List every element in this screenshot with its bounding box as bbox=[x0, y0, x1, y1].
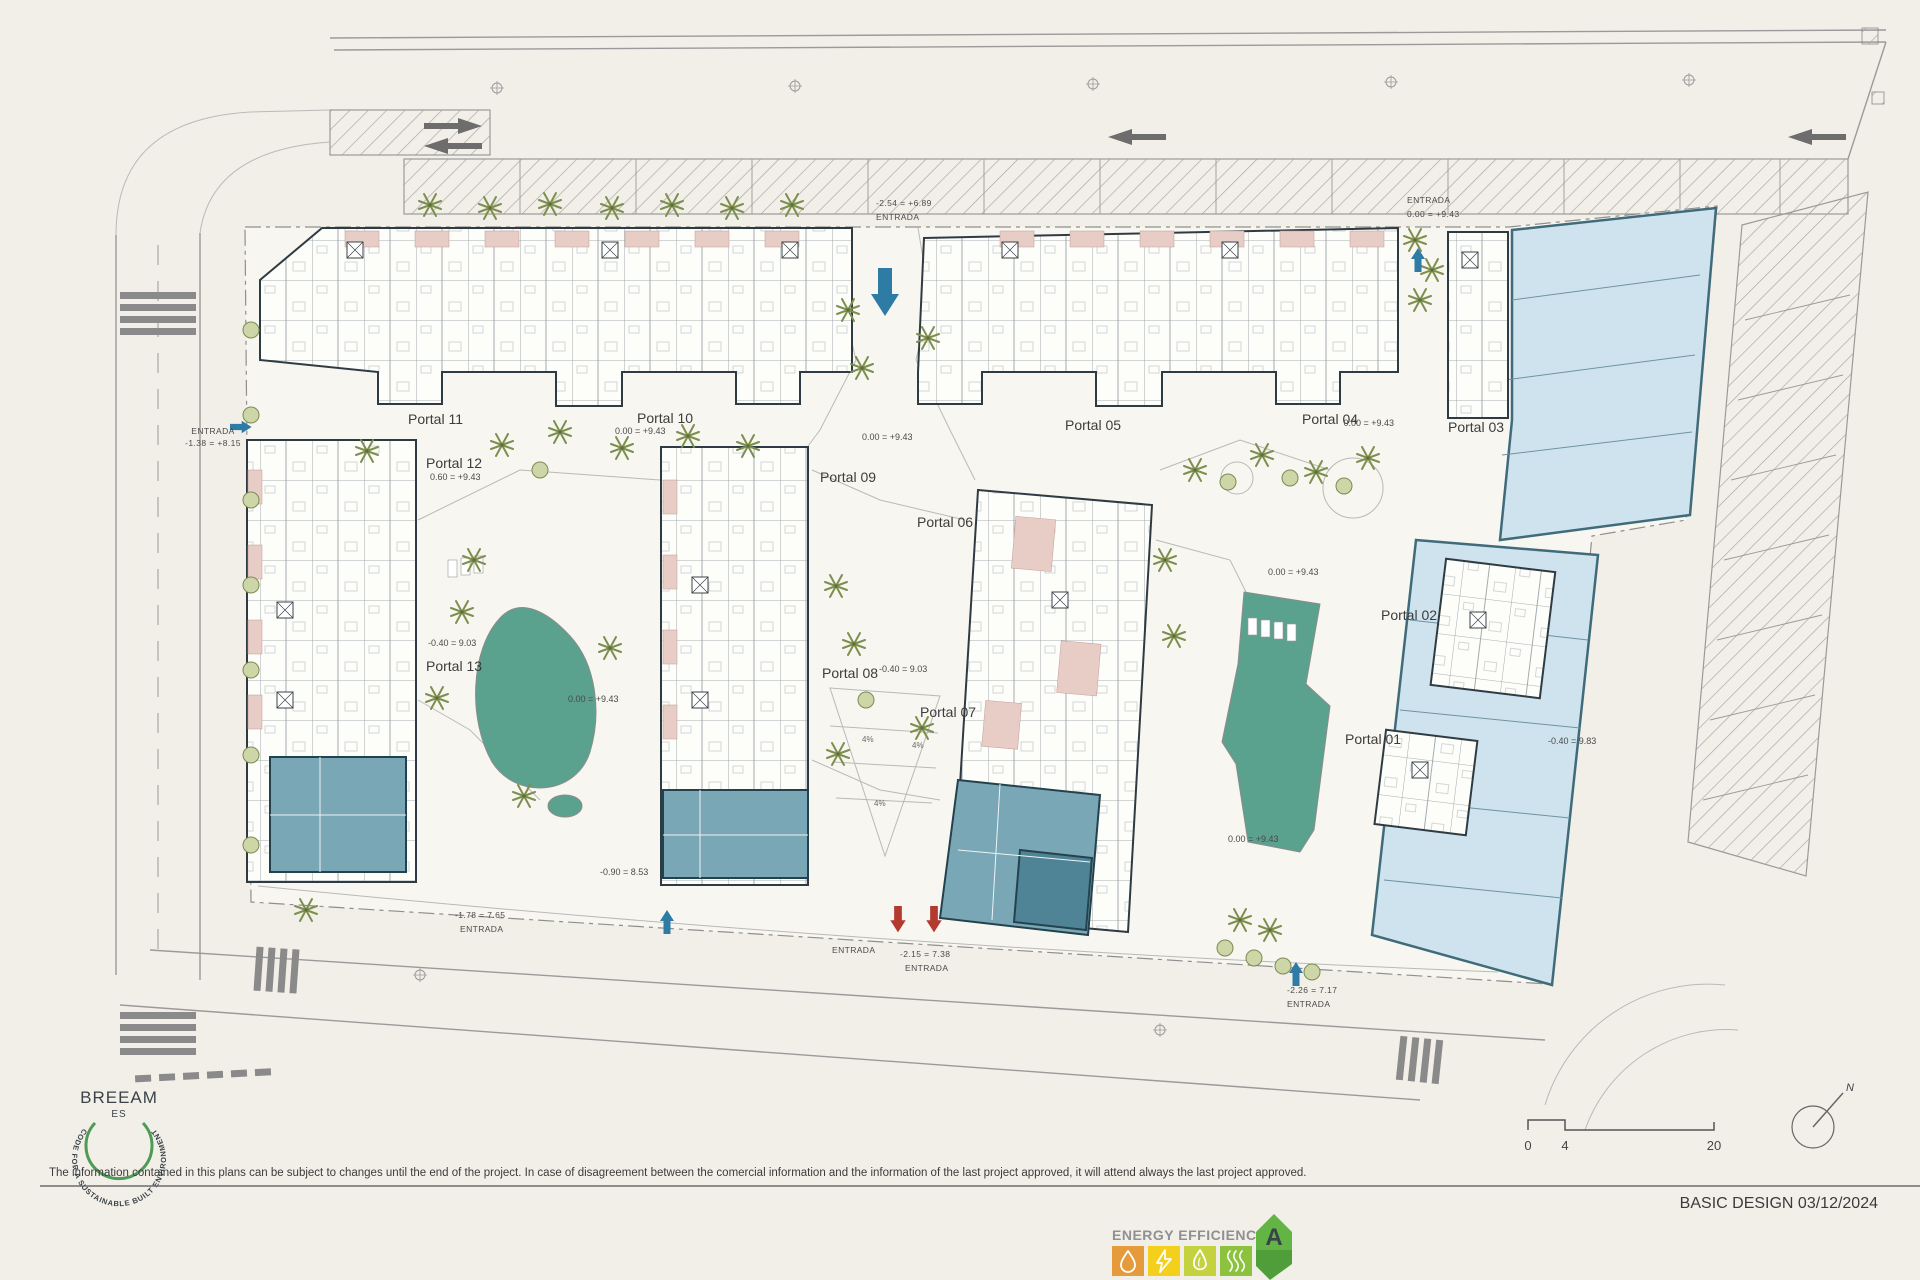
street-lamp bbox=[413, 968, 427, 982]
commercial-zone-north bbox=[1500, 208, 1716, 540]
entrance-label: -2.26 = 7.17 bbox=[1287, 985, 1337, 995]
building-portal-02 bbox=[1431, 559, 1556, 698]
scale-tick-label: 0 bbox=[1524, 1138, 1531, 1153]
portal-label: Portal 10 bbox=[637, 410, 693, 426]
ramp-grade-label: 4% bbox=[874, 799, 886, 808]
entrance-label: -1.78 = 7.65 bbox=[455, 910, 505, 920]
level-label: -0.40 = 9.03 bbox=[879, 664, 927, 674]
street-lamps bbox=[490, 73, 1696, 95]
north-compass: N bbox=[1792, 1082, 1854, 1148]
ramp-grade-label: 4% bbox=[862, 735, 874, 744]
breeam-name: BREEAM bbox=[80, 1088, 158, 1107]
portal-label: Portal 12 bbox=[426, 455, 482, 471]
entrance-label: 0.00 = +9.43 bbox=[1407, 209, 1460, 219]
energy-label: ENERGY EFFICIENCY A bbox=[1112, 1214, 1292, 1280]
energy-emissions-icon bbox=[1220, 1246, 1252, 1276]
level-label: 0.00 = +9.43 bbox=[1228, 834, 1279, 844]
breeam-region: ES bbox=[111, 1109, 126, 1120]
level-label: 0.00 = +9.43 bbox=[1268, 567, 1319, 577]
entrance-label: ENTRADA bbox=[460, 924, 503, 934]
site-plan-drawing: 4% 4% 4% bbox=[0, 0, 1920, 1280]
scale-tick-label: 20 bbox=[1707, 1138, 1721, 1153]
energy-grade-letter: A bbox=[1265, 1224, 1282, 1251]
portal-label: Portal 11 bbox=[408, 411, 463, 427]
level-label: -0.40 = 9.03 bbox=[428, 638, 476, 648]
energy-title: ENERGY EFFICIENCY bbox=[1112, 1227, 1267, 1243]
entrance-label: ENTRADA bbox=[1287, 999, 1330, 1009]
crosswalk bbox=[254, 947, 300, 994]
scale-bar: 0 4 20 bbox=[1524, 1120, 1721, 1153]
portal-label: Portal 05 bbox=[1065, 417, 1121, 433]
energy-water-icon bbox=[1112, 1246, 1144, 1276]
level-label: 0.00 = +9.43 bbox=[862, 432, 913, 442]
site-plan-sheet: 4% 4% 4% bbox=[0, 0, 1920, 1280]
level-label: 0.00 = +9.43 bbox=[615, 426, 666, 436]
compass-north-label: N bbox=[1846, 1082, 1854, 1094]
portal-label: Portal 02 bbox=[1381, 607, 1437, 623]
energy-electricity-icon bbox=[1148, 1246, 1180, 1276]
entrance-label: -2.54 = +6.89 bbox=[876, 198, 932, 208]
portal-label: Portal 03 bbox=[1448, 419, 1504, 435]
entrance-label: ENTRADA bbox=[1407, 195, 1450, 205]
portal-label: Portal 08 bbox=[822, 665, 878, 681]
level-label: -0.40 = 9.83 bbox=[1548, 736, 1596, 746]
portal-label: Portal 01 bbox=[1345, 731, 1401, 747]
lane-arrow-left-icon bbox=[1788, 129, 1846, 145]
title-block: BASIC DESIGN 03/12/2024 bbox=[1680, 1195, 1878, 1212]
entrance-label: ENTRADA bbox=[191, 426, 234, 436]
entrance-label: -2.15 = 7.38 bbox=[900, 949, 950, 959]
top-road bbox=[330, 28, 1886, 214]
energy-grade-tail bbox=[1256, 1250, 1292, 1280]
level-label: -0.90 = 8.53 bbox=[600, 867, 648, 877]
level-label: 0.00 = +9.43 bbox=[1343, 418, 1394, 428]
level-label: 0.00 = +9.43 bbox=[568, 694, 619, 704]
breeam-logo: CODE FOR A SUSTAINABLE BUILT ENVIRONMENT… bbox=[70, 1088, 168, 1208]
utility-marker bbox=[1872, 92, 1884, 104]
crosswalk bbox=[120, 292, 196, 335]
lane-arrow-left-icon bbox=[1108, 129, 1166, 145]
entrance-label: ENTRADA bbox=[832, 945, 875, 955]
pool-west-small bbox=[548, 795, 582, 817]
portal-label: Portal 09 bbox=[820, 469, 876, 485]
scale-tick-label: 4 bbox=[1561, 1138, 1568, 1153]
ramp-grade-label: 4% bbox=[912, 741, 924, 750]
entrance-label: -1.38 = +8.15 bbox=[185, 438, 241, 448]
portal-label: Portal 07 bbox=[920, 704, 976, 720]
entrance-label: ENTRADA bbox=[876, 212, 919, 222]
energy-heating-icon bbox=[1184, 1246, 1216, 1276]
street-lamp bbox=[1153, 1023, 1167, 1037]
level-label: 0.60 = +9.43 bbox=[430, 472, 481, 482]
entrance-label: ENTRADA bbox=[905, 963, 948, 973]
crosswalk bbox=[1396, 1036, 1443, 1084]
utility-marker bbox=[1862, 28, 1878, 44]
road-marking bbox=[135, 1068, 271, 1082]
disclaimer-text: The information contained in this plans … bbox=[49, 1167, 1306, 1179]
portal-label: Portal 13 bbox=[426, 658, 482, 674]
crosswalk bbox=[120, 1012, 196, 1055]
portal-label: Portal 06 bbox=[917, 514, 973, 530]
